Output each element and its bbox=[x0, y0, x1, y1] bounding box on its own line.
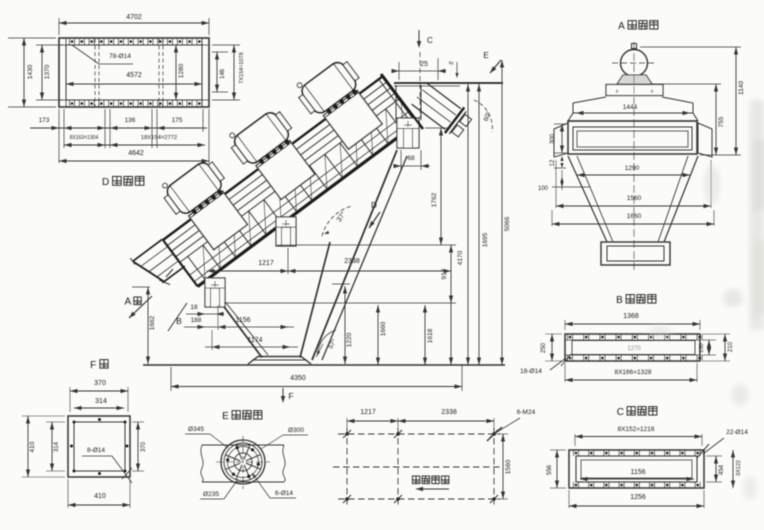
svg-text:1660: 1660 bbox=[380, 321, 387, 336]
svg-text:18X154=2772: 18X154=2772 bbox=[141, 135, 177, 141]
svg-text:4642: 4642 bbox=[128, 150, 144, 157]
svg-text:F: F bbox=[90, 360, 96, 371]
svg-text:175: 175 bbox=[172, 117, 183, 124]
svg-text:D: D bbox=[371, 201, 377, 210]
svg-text:146: 146 bbox=[220, 68, 226, 79]
svg-text:1695: 1695 bbox=[482, 232, 489, 247]
svg-text:1270: 1270 bbox=[627, 346, 641, 352]
svg-text:4572: 4572 bbox=[126, 72, 142, 79]
svg-text:370: 370 bbox=[141, 441, 147, 452]
svg-text:A: A bbox=[618, 21, 625, 32]
svg-text:4702: 4702 bbox=[126, 14, 142, 21]
svg-text:Ø345: Ø345 bbox=[188, 426, 204, 433]
svg-text:4170: 4170 bbox=[457, 250, 464, 265]
svg-text:B: B bbox=[616, 295, 623, 306]
svg-text:1290: 1290 bbox=[625, 165, 640, 172]
svg-text:5066: 5066 bbox=[504, 216, 511, 231]
svg-text:6-M24: 6-M24 bbox=[517, 409, 536, 416]
svg-text:454: 454 bbox=[719, 464, 725, 475]
svg-text:F: F bbox=[288, 391, 293, 401]
svg-text:1618: 1618 bbox=[427, 328, 434, 343]
svg-text:1156: 1156 bbox=[630, 469, 645, 476]
svg-text:E: E bbox=[483, 51, 488, 60]
svg-text:C: C bbox=[427, 36, 433, 45]
svg-text:410: 410 bbox=[29, 441, 36, 452]
svg-text:12: 12 bbox=[550, 159, 556, 166]
svg-text:300: 300 bbox=[550, 133, 556, 144]
svg-text:188: 188 bbox=[191, 317, 202, 324]
svg-text:18: 18 bbox=[190, 304, 198, 311]
svg-text:1370: 1370 bbox=[44, 64, 51, 79]
svg-text:1174: 1174 bbox=[247, 337, 262, 344]
svg-text:1368: 1368 bbox=[623, 313, 639, 320]
svg-text:C: C bbox=[617, 407, 624, 418]
svg-text:8-Ø14: 8-Ø14 bbox=[87, 447, 105, 454]
svg-text:1430: 1430 bbox=[27, 64, 34, 79]
svg-text:1444: 1444 bbox=[623, 104, 638, 111]
svg-text:136: 136 bbox=[125, 117, 136, 124]
svg-text:1156: 1156 bbox=[235, 317, 250, 324]
svg-text:755: 755 bbox=[718, 116, 725, 127]
svg-text:556: 556 bbox=[547, 464, 553, 475]
svg-text:Ø300: Ø300 bbox=[288, 427, 304, 434]
svg-text:8X152=1216: 8X152=1216 bbox=[617, 426, 654, 433]
svg-text:150: 150 bbox=[699, 343, 705, 352]
svg-text:E: E bbox=[222, 411, 229, 422]
svg-text:+: + bbox=[650, 89, 654, 96]
svg-text:410: 410 bbox=[94, 493, 106, 500]
svg-text:4350: 4350 bbox=[290, 375, 306, 382]
svg-text:2338: 2338 bbox=[344, 258, 360, 265]
svg-text:100: 100 bbox=[538, 186, 549, 192]
svg-text:2338: 2338 bbox=[441, 409, 457, 416]
svg-text:25: 25 bbox=[420, 61, 428, 68]
svg-text:173: 173 bbox=[39, 117, 50, 124]
svg-text:18-Ø14: 18-Ø14 bbox=[520, 368, 542, 375]
svg-text:370: 370 bbox=[94, 380, 106, 387]
svg-text:314: 314 bbox=[95, 398, 107, 405]
svg-text:1220: 1220 bbox=[346, 332, 353, 347]
svg-text:8X166=1328: 8X166=1328 bbox=[614, 369, 651, 376]
svg-text:250: 250 bbox=[541, 342, 547, 353]
svg-text:8X163=1304: 8X163=1304 bbox=[70, 135, 99, 141]
svg-text:A: A bbox=[124, 296, 131, 307]
svg-text:D: D bbox=[102, 177, 109, 188]
svg-text:210: 210 bbox=[728, 341, 734, 352]
svg-text:6-Ø14: 6-Ø14 bbox=[275, 490, 293, 497]
svg-text:1217: 1217 bbox=[360, 409, 376, 416]
svg-text:+: + bbox=[615, 89, 619, 96]
svg-text:1280: 1280 bbox=[178, 63, 185, 78]
svg-text:314: 314 bbox=[54, 441, 60, 452]
svg-text:68: 68 bbox=[407, 155, 415, 162]
svg-text:22-Ø14: 22-Ø14 bbox=[726, 429, 748, 436]
svg-text:1217: 1217 bbox=[258, 260, 274, 267]
svg-text:1560: 1560 bbox=[505, 459, 512, 474]
svg-text:1256: 1256 bbox=[630, 494, 646, 501]
svg-text:1762: 1762 bbox=[431, 192, 438, 207]
svg-text:78-Ø14: 78-Ø14 bbox=[109, 53, 131, 60]
svg-text:1662: 1662 bbox=[149, 315, 156, 330]
svg-text:1140: 1140 bbox=[738, 81, 745, 95]
svg-text:7X154=1078: 7X154=1078 bbox=[239, 52, 245, 83]
svg-text:3X122: 3X122 bbox=[736, 460, 742, 476]
svg-text:Ø235: Ø235 bbox=[203, 491, 219, 498]
